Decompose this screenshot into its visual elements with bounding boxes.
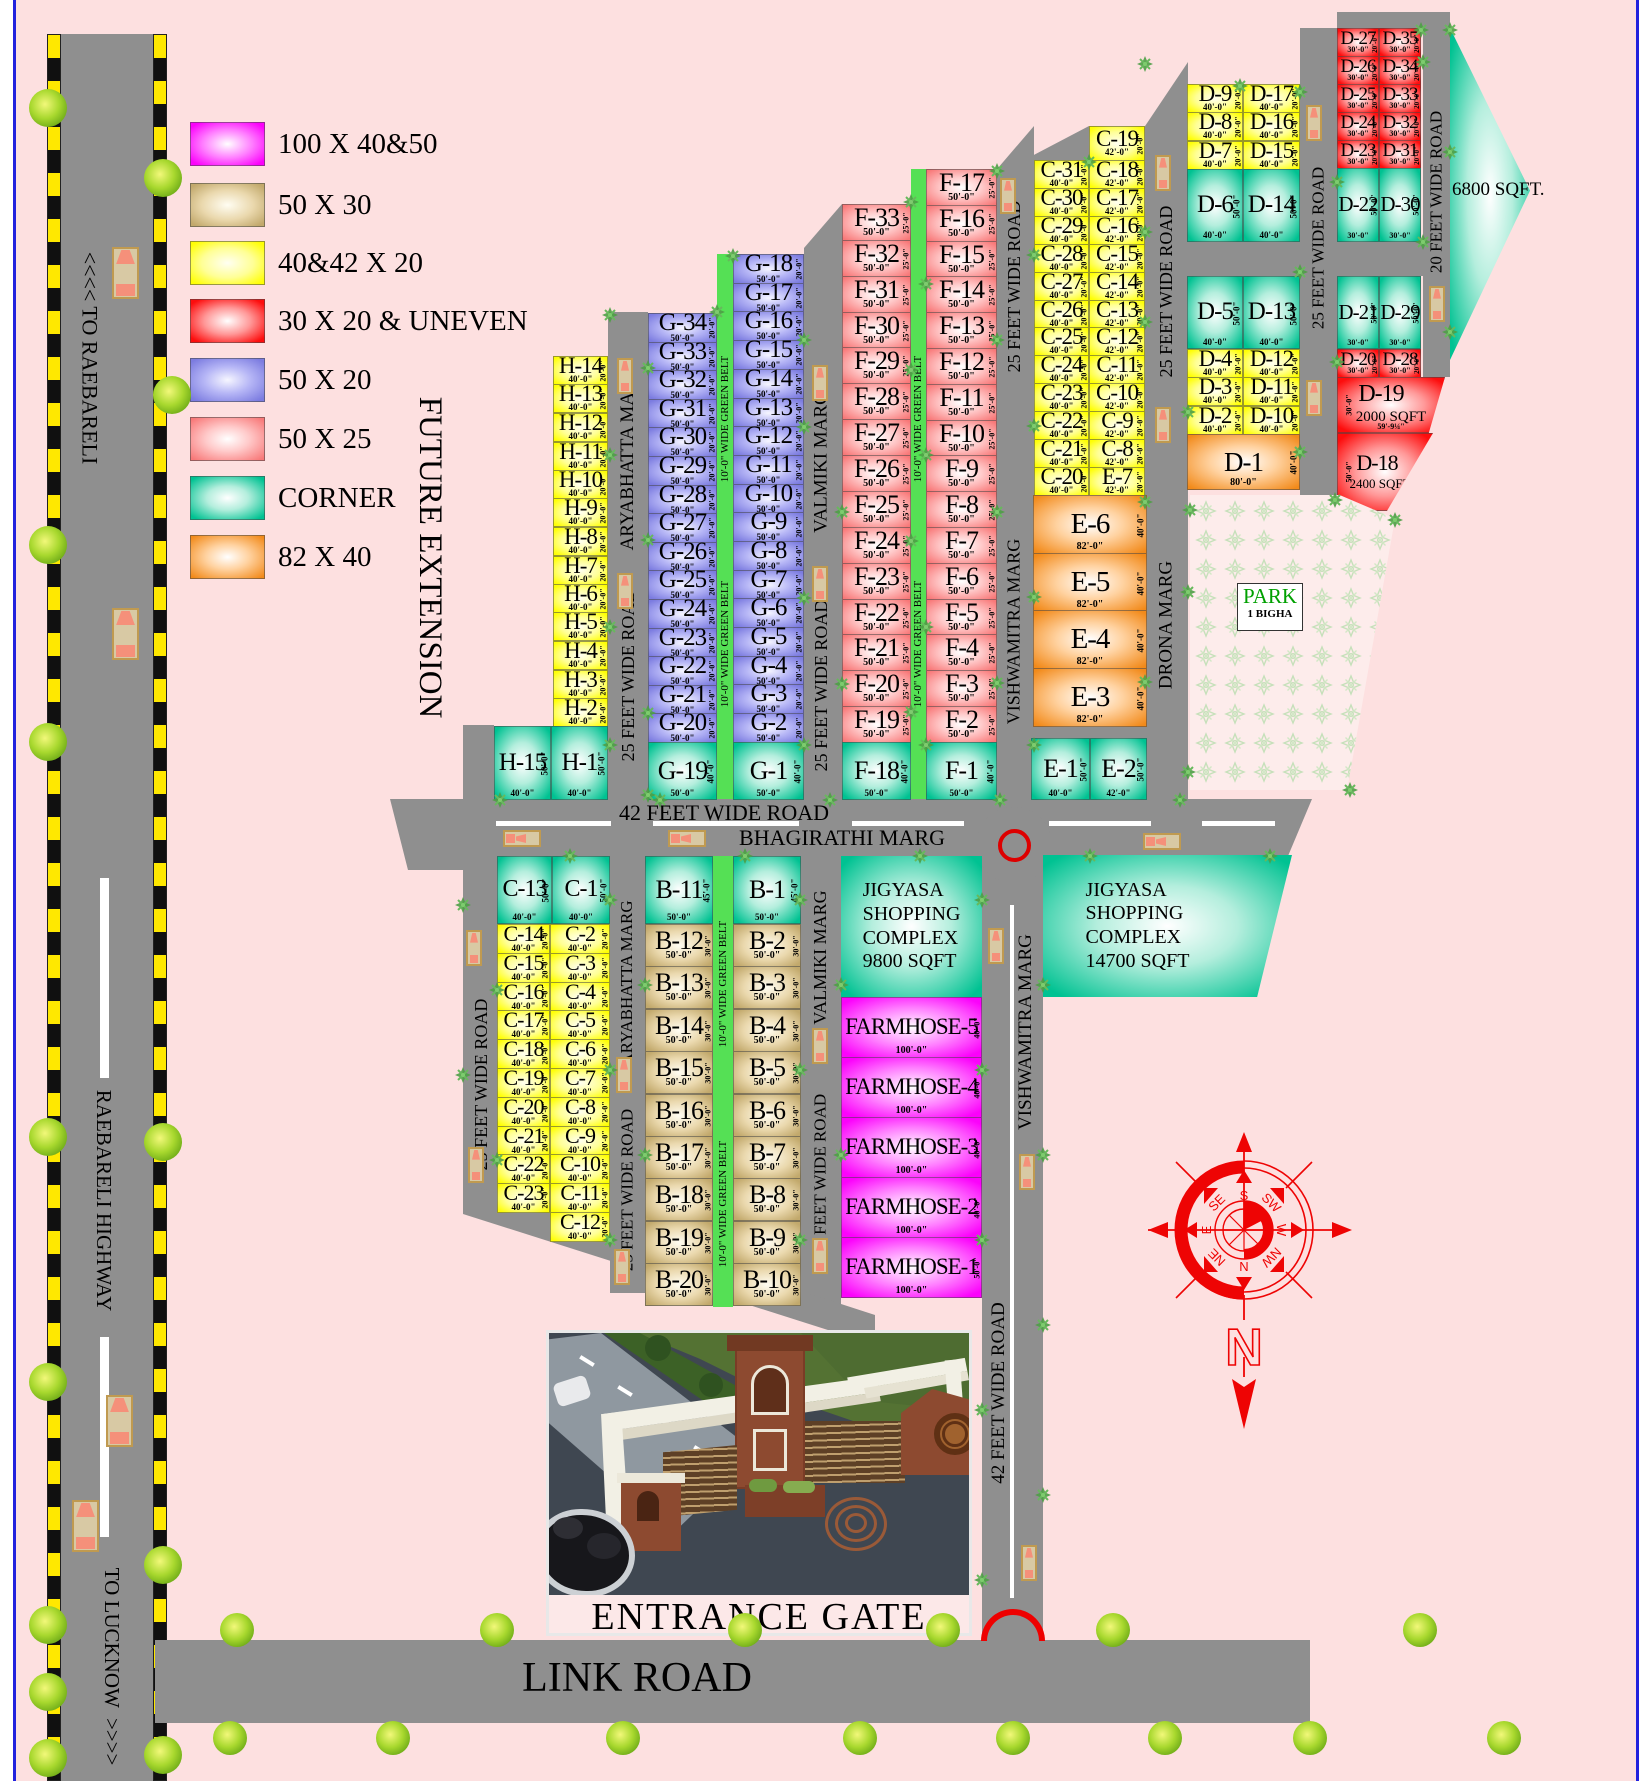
- svg-text:N: N: [1239, 1259, 1248, 1274]
- svg-text:E: E: [1199, 1225, 1214, 1234]
- svg-text:N: N: [1225, 1319, 1263, 1377]
- svg-text:S: S: [1240, 1188, 1249, 1203]
- svg-text:W: W: [1274, 1224, 1289, 1237]
